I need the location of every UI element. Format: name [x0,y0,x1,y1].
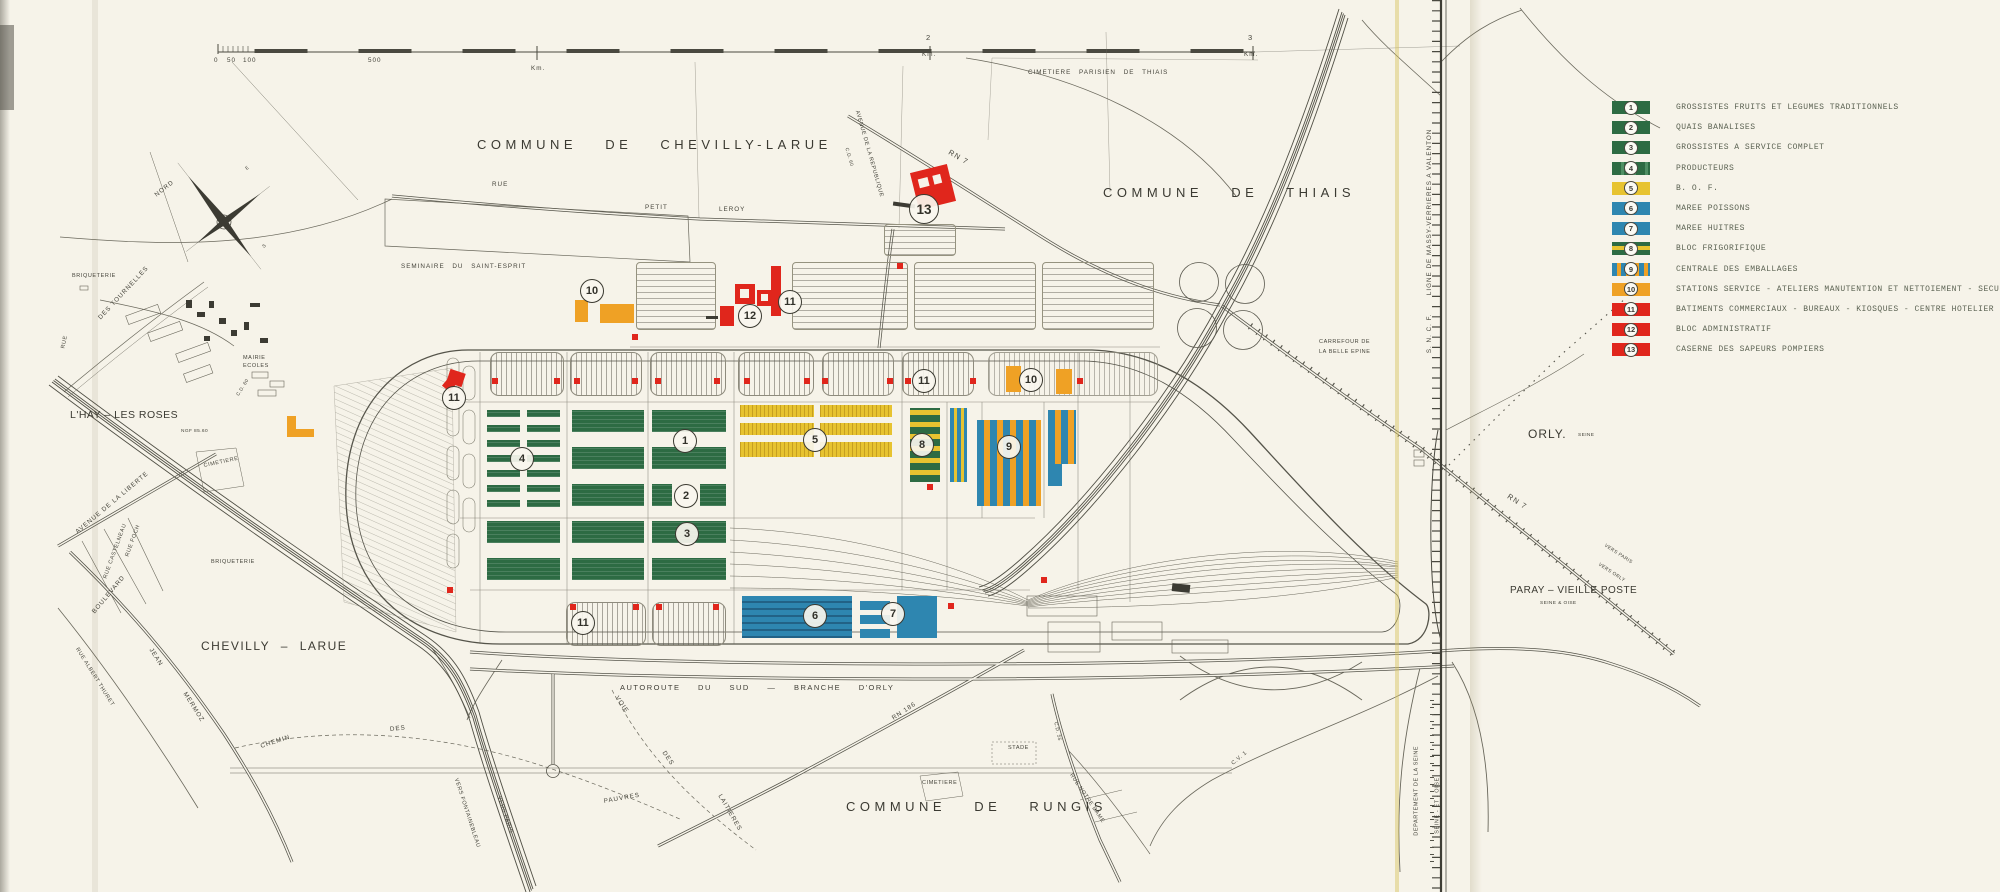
legend-swatch-green: 2 [1612,121,1650,134]
producteurs-bar [487,410,520,417]
legend-label: MAREE HUITRES [1676,224,1745,233]
elevation-label: NGF 85.60 [181,430,208,435]
kiosk-dot [822,378,828,384]
zone-marker-3: 3 [675,522,699,546]
maree-poissons-hall [742,596,852,638]
place-label: BRIQUETERIE [211,560,255,566]
legend-label: BATIMENTS COMMERCIAUX - BUREAUX - KIOSQU… [1676,305,1994,314]
scale-label: 0 [214,58,219,64]
legend-swatch-blue: 6 [1612,202,1650,215]
quay-platform [636,262,716,330]
market-hall [572,521,644,543]
legend-row: 7MAREE HUITRES [1612,222,2000,235]
junction-label: CARREFOUR DE [1319,340,1370,346]
kiosk-dot [633,604,639,610]
emball ages-block [1048,410,1076,464]
zone-marker-2: 2 [674,484,698,508]
producteurs-bar [487,440,520,447]
legend-row: 1GROSSISTES FRUITS ET LEGUMES TRADITIONN… [1612,101,2000,114]
legend-label: STATIONS SERVICE - ATELIERS MANUTENTION … [1676,285,2000,294]
commercial-building [735,284,755,304]
legend-label: B. O. F. [1676,184,1718,193]
kiosk-dot [804,378,810,384]
zone-marker-7: 7 [881,602,905,626]
commune-label: COMMUNE DE RUNGIS [846,800,1107,813]
legend-row: 5B. O. F. [1612,182,2000,195]
bof-hall [820,423,892,435]
kiosk-dot [713,604,719,610]
legend-label: BLOC ADMINISTRATIF [1676,325,1771,334]
producteurs-bar [487,485,520,492]
bloc-administratif-building [720,306,734,326]
commercial-building [757,290,773,306]
city-label: L'HAY – LES ROSES [70,410,178,421]
kiosk-dot [1077,378,1083,384]
dept-label: SEINE & OISE [1540,602,1577,607]
legend-row: 3GROSSISTES A SERVICE COMPLET [1612,141,2000,154]
legend-swatch-orange: 10 [1612,283,1650,296]
train-symbol [1172,583,1191,593]
legend-swatch-red: 12 [1612,323,1650,336]
railway-label: LIGNE DE MASSY-VERRIERES A VALENTON [1427,129,1433,295]
scale-label: 500 [368,58,382,64]
legend-row: 8BLOC FRIGORIFIQUE [1612,242,2000,255]
market-hall [487,521,560,543]
kiosk-dot [1041,577,1047,583]
legend-row: 6MAREE POISSONS [1612,202,2000,215]
legend-label: GROSSISTES A SERVICE COMPLET [1676,143,1824,152]
dept-boundary-label: SEINE - ET - OISE [1435,777,1441,834]
street-label: LEROY [719,207,745,213]
scale-label: 3 [1248,34,1253,42]
legend-swatch-blue: 7 [1612,222,1650,235]
cemetery-label: CIMETIERE PARISIEN DE THIAIS [1028,70,1168,76]
market-hall [652,558,726,580]
seminary-label: SEMINAIRE DU SAINT-ESPRIT [401,264,526,270]
legend-swatch-yellow: 5 [1612,182,1650,195]
quay-platform [822,352,894,396]
bof-hall [820,405,892,417]
place-label: STADE [1008,746,1029,752]
railway-label: S. N. C. F. [1427,313,1433,353]
station-service-block [600,304,634,323]
legend-row: 9CENTRALE DES EMBALLAGES [1612,263,2000,276]
legend-swatch-green: 1 [1612,101,1650,114]
commune-label: COMMUNE DE THIAIS [1103,186,1355,199]
cloverleaf-interchange [1178,263,1265,350]
place-label: BRIQUETERIE [72,274,116,280]
producteurs-bar [487,500,520,507]
legend-label: QUAIS BANALISES [1676,123,1756,132]
bof-hall [820,442,892,457]
legend-swatch-red: 11 [1612,303,1650,316]
place-label: ECOLES [243,364,269,370]
quay-platform [738,352,814,396]
market-hall [652,484,672,506]
scale-bar [218,44,1460,60]
market-hall [572,484,644,506]
dept-boundary-label: DEPARTEMENT DE LA SEINE [1414,746,1420,836]
station-service-block [1056,369,1072,394]
emballages-block [950,408,967,482]
legend-row: 13CASERNE DES SAPEURS POMPIERS [1612,343,2000,356]
kiosk-dot [655,378,661,384]
kiosk-dot [554,378,560,384]
legend: 1GROSSISTES FRUITS ET LEGUMES TRADITIONN… [1612,101,2000,356]
kiosk-dot [632,378,638,384]
city-label: CHEVILLY – LARUE [201,640,347,652]
market-hall [572,410,644,432]
zone-marker-11: 11 [778,290,802,314]
paper-edge-mark [0,25,14,110]
kiosk-dot [570,604,576,610]
legend-row: 2QUAIS BANALISES [1612,121,2000,134]
market-hall [572,558,644,580]
bof-hall [740,423,814,435]
zone-marker-11: 11 [912,369,936,393]
kiosk-dot [927,484,933,490]
legend-swatch-green-yellow: 8 [1612,242,1650,255]
village-buildings [186,300,268,343]
kiosk-dot [632,334,638,340]
quay-platform [884,224,956,256]
legend-swatch-green: 3 [1612,141,1650,154]
legend-swatch-red: 13 [1612,343,1650,356]
market-hall [487,558,560,580]
west-parking-fan [334,368,456,632]
producteurs-bar [527,500,560,507]
motorway-label: AUTOROUTE DU SUD — BRANCHE D'ORLY [620,684,894,692]
quay-platform [570,352,642,396]
zone-marker-8: 8 [910,433,934,457]
kiosk-dot [574,378,580,384]
cemetery-label: CIMETIERE [922,781,957,787]
city-label: PARAY – VIEILLE POSTE [1510,586,1637,596]
street-label: PETIT [645,205,668,211]
kiosk-dot [447,587,453,593]
quay-platform [1042,262,1154,330]
legend-label: BLOC FRIGORIFIQUE [1676,244,1766,253]
emballages-block [977,420,1041,506]
legend-swatch-green-striped: 4 [1612,162,1650,175]
zone-marker-5: 5 [803,428,827,452]
building-mark [706,316,718,319]
zone-marker-9: 9 [997,435,1021,459]
legend-label: MAREE POISSONS [1676,204,1750,213]
dept-label: SEINE [1578,434,1594,439]
producteurs-bar [487,470,520,477]
station-service-block [287,429,314,437]
kiosk-dot [492,378,498,384]
legend-label: CASERNE DES SAPEURS POMPIERS [1676,345,1824,354]
zone-marker-10: 10 [580,279,604,303]
kiosk-dot [744,378,750,384]
place-label: MAIRIE [243,356,266,362]
legend-label: PRODUCTEURS [1676,164,1734,173]
scale-label: 100 [243,58,257,64]
producteurs-bar [527,470,560,477]
commune-label: COMMUNE DE CHEVILLY-LARUE [477,138,832,151]
kiosk-dot [887,378,893,384]
producteurs-bar [527,485,560,492]
legend-label: CENTRALE DES EMBALLAGES [1676,265,1798,274]
zone-marker-6: 6 [803,604,827,628]
compass-rose [140,127,307,299]
market-hall [572,447,644,469]
quay-platform [490,352,564,396]
market-hall [700,484,726,506]
legend-row: 11BATIMENTS COMMERCIAUX - BUREAUX - KIOS… [1612,303,2000,316]
legend-swatch-blue-orange: 9 [1612,263,1650,276]
producteurs-bar [487,425,520,432]
zone-marker-4: 4 [510,447,534,471]
producteurs-bar [527,425,560,432]
zone-marker-1: 1 [673,429,697,453]
city-label: ORLY. [1528,428,1567,440]
map-sheet: 1 2 3 4 5 6 7 8 9 10 10 11 11 11 11 12 1… [0,0,2000,892]
legend-label: GROSSISTES FRUITS ET LEGUMES TRADITIONNE… [1676,103,1899,112]
zone-marker-11: 11 [442,386,466,410]
legend-row: 12BLOC ADMINISTRATIF [1612,323,2000,336]
kiosk-dot [656,604,662,610]
main-roads [58,116,1700,882]
scale-label: Km. [1244,52,1258,58]
quay-platform [650,352,726,396]
kiosk-dot [970,378,976,384]
quay-platform [914,262,1036,330]
quay-platform [792,262,908,330]
zone-marker-11: 11 [571,611,595,635]
producteurs-bar [527,410,560,417]
legend-row: 10STATIONS SERVICE - ATELIERS MANUTENTIO… [1612,283,2000,296]
scale-label: 50 [227,58,236,64]
zone-marker-10: 10 [1019,368,1043,392]
junction-label: LA BELLE EPINE [1319,350,1371,356]
zone-marker-13: 13 [909,194,939,224]
kiosk-dot [948,603,954,609]
kiosk-dot [714,378,720,384]
kiosk-dot [905,378,911,384]
scale-label: Km. [922,52,936,58]
legend-row: 4PRODUCTEURS [1612,162,2000,175]
producteurs-bar [527,440,560,447]
scale-label: Km. [531,66,545,72]
scale-label: 2 [926,34,931,42]
street-label: RUE [492,182,508,188]
kiosk-dot [897,263,903,269]
bof-hall [740,405,814,417]
emballages-block [1048,464,1062,486]
station-service-block [575,300,588,322]
zone-marker-12: 12 [738,304,762,328]
